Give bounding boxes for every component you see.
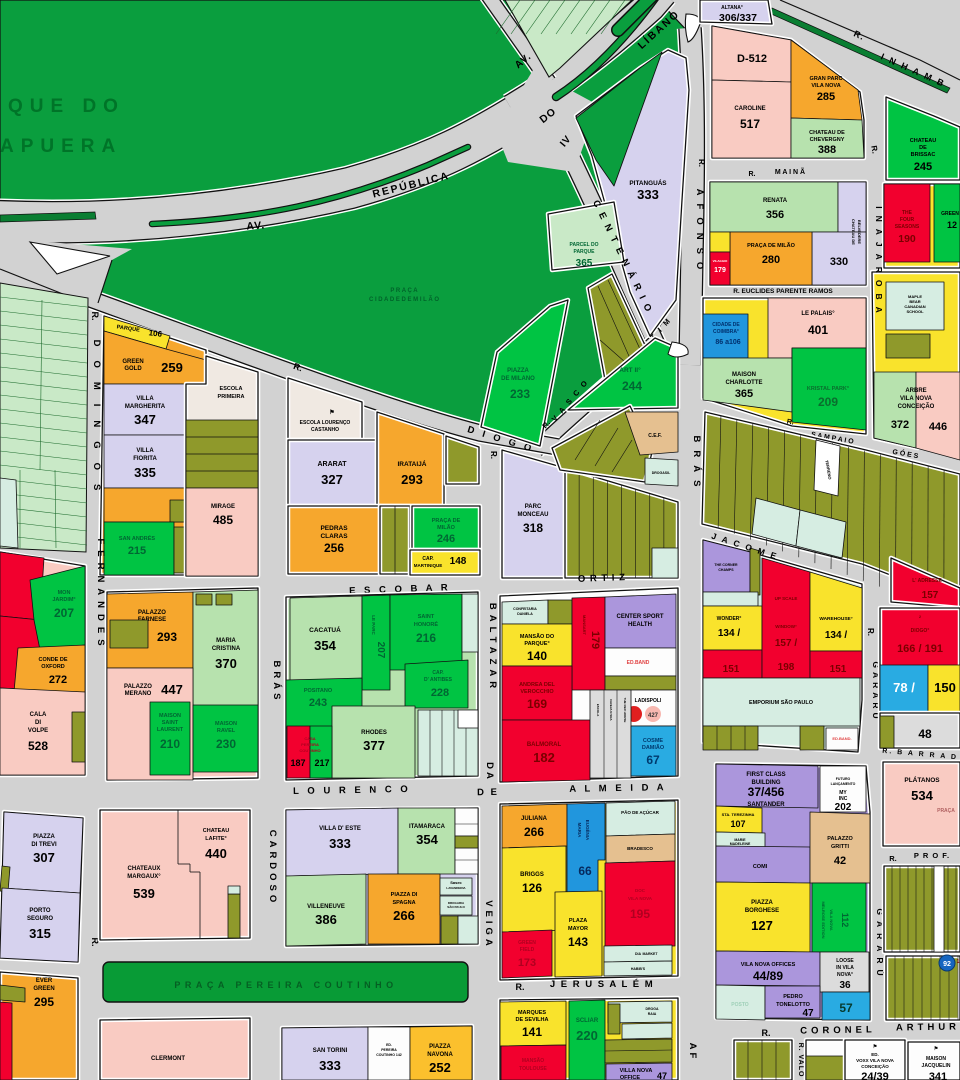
svg-text:CHATEAUX: CHATEAUX bbox=[128, 866, 161, 872]
svg-text:256: 256 bbox=[324, 541, 344, 555]
svg-text:PIAZZA: PIAZZA bbox=[429, 1044, 451, 1050]
svg-text:MARGAUX°: MARGAUX° bbox=[127, 874, 161, 880]
svg-text:R.: R. bbox=[697, 159, 706, 167]
svg-text:PLÁTANOS: PLÁTANOS bbox=[904, 775, 940, 784]
svg-text:RAIA: RAIA bbox=[648, 1012, 657, 1016]
svg-text:PRAÇA PEREIRA COUTINHO: PRAÇA PEREIRA COUTINHO bbox=[174, 980, 397, 990]
svg-text:LAVANDERIA: LAVANDERIA bbox=[446, 886, 466, 890]
svg-text:293: 293 bbox=[157, 630, 177, 644]
svg-text:LE PALAIS°: LE PALAIS° bbox=[801, 311, 835, 317]
svg-text:BALTAZAR: BALTAZAR bbox=[487, 603, 498, 693]
svg-text:PLAZA: PLAZA bbox=[569, 918, 587, 924]
svg-text:COUTINHO 142: COUTINHO 142 bbox=[376, 1053, 402, 1057]
svg-text:143: 143 bbox=[568, 935, 588, 949]
svg-text:315: 315 bbox=[29, 926, 51, 941]
svg-text:⚑: ⚑ bbox=[934, 1046, 938, 1052]
svg-text:GREEN: GREEN bbox=[33, 986, 54, 992]
svg-text:333: 333 bbox=[319, 1058, 341, 1073]
svg-text:MANSART: MANSART bbox=[582, 615, 587, 636]
svg-text:42: 42 bbox=[834, 855, 846, 867]
svg-text:CLARAS: CLARAS bbox=[320, 533, 348, 540]
svg-text:ANDREA DEL: ANDREA DEL bbox=[519, 682, 555, 688]
svg-text:ESCOLA: ESCOLA bbox=[596, 704, 600, 717]
svg-text:179: 179 bbox=[589, 631, 601, 649]
svg-text:190: 190 bbox=[898, 233, 916, 245]
svg-text:COMI: COMI bbox=[753, 864, 768, 870]
svg-text:DAMIÃO: DAMIÃO bbox=[642, 744, 665, 751]
svg-text:JACQUELIN: JACQUELIN bbox=[922, 1063, 951, 1069]
svg-text:VILLENEUVE: VILLENEUVE bbox=[307, 904, 345, 910]
svg-text:ARARAT: ARARAT bbox=[317, 461, 347, 468]
svg-text:333: 333 bbox=[329, 836, 351, 851]
svg-text:187: 187 bbox=[290, 758, 305, 768]
svg-text:COSME: COSME bbox=[643, 738, 664, 744]
svg-text:134 /: 134 / bbox=[825, 630, 847, 641]
svg-text:PARQUE: PARQUE bbox=[573, 249, 595, 255]
svg-text:285: 285 bbox=[817, 91, 835, 103]
svg-text:J E R U S A L É M: J E R U S A L É M bbox=[550, 979, 654, 990]
svg-text:LAURENT: LAURENT bbox=[157, 727, 184, 733]
svg-text:WONDER°: WONDER° bbox=[717, 616, 742, 622]
svg-text:202: 202 bbox=[835, 802, 852, 813]
svg-text:DE: DE bbox=[919, 145, 927, 151]
svg-text:UP SCALE: UP SCALE bbox=[775, 596, 798, 601]
svg-text:86 a106: 86 a106 bbox=[715, 339, 740, 346]
svg-text:341: 341 bbox=[929, 1071, 947, 1080]
svg-text:166 / 191: 166 / 191 bbox=[897, 643, 943, 655]
svg-text:280: 280 bbox=[762, 254, 780, 266]
svg-text:266: 266 bbox=[524, 825, 544, 839]
svg-text:RHODES: RHODES bbox=[361, 730, 387, 736]
svg-text:IRATAIJÁ: IRATAIJÁ bbox=[397, 459, 426, 468]
svg-text:37/456: 37/456 bbox=[748, 785, 785, 799]
svg-text:CACATUÁ: CACATUÁ bbox=[309, 625, 341, 634]
svg-text:GREEN: GREEN bbox=[122, 359, 143, 365]
svg-text:528: 528 bbox=[28, 739, 48, 753]
svg-text:THE: THE bbox=[902, 210, 913, 216]
svg-text:R.: R. bbox=[889, 854, 897, 863]
svg-text:DANIELA: DANIELA bbox=[517, 612, 533, 616]
svg-text:R. VALO: R. VALO bbox=[797, 1043, 804, 1078]
svg-text:EVER: EVER bbox=[36, 978, 53, 984]
svg-text:CHEVERGNY: CHEVERGNY bbox=[810, 137, 845, 143]
svg-text:BRADESCO: BRADESCO bbox=[627, 846, 653, 851]
svg-text:169: 169 bbox=[527, 697, 547, 711]
svg-text:RAVEL: RAVEL bbox=[217, 728, 236, 734]
svg-text:LE PARC: LE PARC bbox=[371, 615, 376, 635]
svg-text:DI TREVI: DI TREVI bbox=[31, 842, 57, 848]
svg-text:FUTURO: FUTURO bbox=[836, 777, 851, 781]
svg-text:1: 1 bbox=[957, 959, 960, 965]
svg-text:DROGASIL: DROGASIL bbox=[652, 471, 671, 475]
svg-text:140: 140 bbox=[527, 649, 547, 663]
svg-text:MERANO: MERANO bbox=[125, 691, 152, 697]
svg-text:PITANGUÁS: PITANGUÁS bbox=[629, 178, 667, 187]
svg-text:295: 295 bbox=[34, 995, 54, 1009]
svg-text:R. EUCLIDES PARENTE RAMOS: R. EUCLIDES PARENTE RAMOS bbox=[733, 288, 833, 295]
svg-text:VILAGGIO: VILAGGIO bbox=[713, 259, 728, 263]
svg-text:D E: D E bbox=[477, 787, 499, 798]
svg-text:VEIGA: VEIGA bbox=[483, 900, 494, 950]
svg-text:C.E.F.: C.E.F. bbox=[648, 433, 662, 439]
svg-text:44/89: 44/89 bbox=[753, 969, 783, 983]
svg-text:151: 151 bbox=[830, 664, 847, 675]
svg-text:127: 127 bbox=[751, 918, 773, 933]
svg-text:IN VILA: IN VILA bbox=[836, 965, 854, 971]
svg-text:MARIA: MARIA bbox=[216, 638, 236, 644]
svg-text:VILA NOVA: VILA NOVA bbox=[900, 396, 933, 402]
svg-text:PIAZZA: PIAZZA bbox=[33, 834, 55, 840]
svg-text:PEREIRA: PEREIRA bbox=[301, 742, 319, 747]
svg-text:78 /: 78 / bbox=[893, 680, 915, 695]
svg-text:⚑: ⚑ bbox=[329, 409, 334, 416]
svg-text:FIELD: FIELD bbox=[520, 947, 535, 953]
svg-text:92: 92 bbox=[943, 961, 951, 968]
svg-text:M A I N Ã: M A I N Ã bbox=[775, 167, 805, 176]
svg-text:354: 354 bbox=[314, 638, 336, 653]
svg-text:157: 157 bbox=[922, 590, 939, 601]
svg-text:HEALTH: HEALTH bbox=[628, 622, 652, 628]
svg-text:370: 370 bbox=[215, 656, 237, 671]
svg-text:POSTO: POSTO bbox=[731, 1002, 749, 1008]
svg-text:447: 447 bbox=[161, 682, 183, 697]
svg-text:FIORITA: FIORITA bbox=[133, 456, 157, 462]
svg-text:SPAGNA: SPAGNA bbox=[392, 900, 415, 906]
svg-text:ED.: ED. bbox=[386, 1043, 392, 1047]
svg-text:107: 107 bbox=[730, 819, 745, 829]
svg-text:MANSÃO: MANSÃO bbox=[522, 1057, 544, 1064]
svg-text:GRITTI: GRITTI bbox=[831, 844, 849, 850]
svg-text:L O U R E N C O: L O U R E N C O bbox=[293, 784, 411, 797]
svg-text:210: 210 bbox=[160, 737, 180, 751]
svg-text:24/39: 24/39 bbox=[861, 1071, 889, 1080]
svg-text:WAREHOUSE°: WAREHOUSE° bbox=[819, 616, 852, 622]
svg-text:12: 12 bbox=[947, 220, 957, 230]
svg-text:293: 293 bbox=[401, 472, 423, 487]
svg-text:MILÃO: MILÃO bbox=[437, 524, 455, 531]
svg-text:HABIB'S: HABIB'S bbox=[631, 967, 646, 971]
svg-text:PIAZZA: PIAZZA bbox=[507, 368, 529, 374]
svg-text:R.: R. bbox=[90, 312, 100, 321]
svg-text:CASTANHO: CASTANHO bbox=[311, 427, 339, 433]
svg-text:SCLIAR: SCLIAR bbox=[576, 1018, 599, 1024]
svg-text:198: 198 bbox=[778, 662, 795, 673]
svg-text:FERNANDES: FERNANDES bbox=[95, 538, 106, 651]
svg-text:517: 517 bbox=[740, 117, 760, 131]
svg-text:141: 141 bbox=[522, 1025, 542, 1039]
svg-text:KRISTAL PARK°: KRISTAL PARK° bbox=[807, 386, 849, 392]
svg-text:MARIA: MARIA bbox=[577, 823, 582, 838]
svg-text:173: 173 bbox=[518, 957, 536, 969]
svg-text:COIMBRA°: COIMBRA° bbox=[713, 329, 739, 335]
svg-text:216: 216 bbox=[416, 631, 436, 645]
svg-text:356: 356 bbox=[766, 209, 784, 221]
svg-text:⚑: ⚑ bbox=[873, 1044, 877, 1050]
svg-text:233: 233 bbox=[510, 387, 530, 401]
svg-text:BRÁS: BRÁS bbox=[271, 661, 282, 704]
svg-text:106: 106 bbox=[148, 328, 163, 339]
svg-text:HONORÉ: HONORÉ bbox=[414, 620, 438, 628]
svg-text:AFONSO: AFONSO bbox=[694, 189, 705, 278]
svg-text:VILA NOVA: VILA NOVA bbox=[628, 896, 653, 901]
svg-text:THE RED HOUSE: THE RED HOUSE bbox=[623, 698, 627, 723]
svg-text:EUGÊNIA: EUGÊNIA bbox=[585, 820, 592, 841]
svg-text:L' ADRESSE: L' ADRESSE bbox=[912, 578, 942, 584]
svg-text:MARQUES: MARQUES bbox=[518, 1010, 546, 1016]
svg-text:MANSÃO DO: MANSÃO DO bbox=[520, 633, 555, 640]
svg-text:SAN ANDRÉS: SAN ANDRÉS bbox=[119, 534, 155, 542]
svg-text:245: 245 bbox=[914, 161, 932, 173]
svg-text:PARCEL DO: PARCEL DO bbox=[570, 242, 599, 248]
svg-text:207: 207 bbox=[54, 606, 74, 620]
svg-text:ARTHUR: ARTHUR bbox=[896, 1021, 960, 1033]
svg-text:ALTANA°: ALTANA° bbox=[721, 5, 743, 11]
svg-text:DIA: DIA bbox=[635, 952, 642, 956]
svg-text:WINDOW°: WINDOW° bbox=[775, 624, 797, 629]
svg-text:BRÁS: BRÁS bbox=[691, 436, 702, 495]
svg-text:ITAMARACA: ITAMARACA bbox=[409, 824, 446, 830]
svg-text:R.: R. bbox=[762, 1028, 771, 1038]
svg-text:BALMORAL: BALMORAL bbox=[527, 742, 562, 748]
svg-text:446: 446 bbox=[929, 421, 947, 433]
svg-text:FOUR: FOUR bbox=[900, 217, 915, 223]
svg-text:209: 209 bbox=[818, 395, 838, 409]
svg-text:230: 230 bbox=[216, 737, 236, 751]
svg-text:SEASONS: SEASONS bbox=[895, 224, 920, 230]
svg-text:D-512: D-512 bbox=[737, 53, 767, 65]
svg-text:TOULOUSE: TOULOUSE bbox=[519, 1066, 547, 1072]
svg-text:R.: R. bbox=[866, 628, 875, 636]
svg-text:CHAMPS: CHAMPS bbox=[718, 568, 734, 572]
svg-text:A L M E I D A: A L M E I D A bbox=[569, 782, 666, 795]
svg-text:215: 215 bbox=[128, 545, 146, 557]
svg-text:PEREIRA: PEREIRA bbox=[381, 1048, 397, 1052]
svg-text:GREEN: GREEN bbox=[518, 940, 536, 946]
svg-text:GREEN: GREEN bbox=[941, 211, 959, 217]
svg-text:SÃO PAULO: SÃO PAULO bbox=[447, 904, 465, 909]
svg-text:ARBRE: ARBRE bbox=[905, 388, 926, 394]
svg-text:DI: DI bbox=[35, 720, 41, 726]
svg-text:207: 207 bbox=[375, 642, 386, 659]
svg-text:388: 388 bbox=[818, 144, 836, 156]
svg-text:APUERA: APUERA bbox=[0, 136, 122, 157]
svg-text:THE CORNER: THE CORNER bbox=[714, 563, 738, 567]
svg-text:243: 243 bbox=[309, 697, 327, 709]
svg-text:CAROLINE: CAROLINE bbox=[734, 106, 765, 112]
svg-text:POSITANO: POSITANO bbox=[304, 688, 333, 694]
svg-text:MAISON: MAISON bbox=[215, 721, 237, 727]
svg-text:DE SEVILHA: DE SEVILHA bbox=[515, 1017, 548, 1023]
svg-text:179: 179 bbox=[714, 267, 726, 274]
svg-text:OFFICE: OFFICE bbox=[620, 1075, 640, 1080]
svg-text:534: 534 bbox=[911, 788, 933, 803]
svg-text:SEGURO: SEGURO bbox=[27, 916, 53, 922]
svg-text:BRISSAC: BRISSAC bbox=[911, 152, 936, 158]
svg-text:347: 347 bbox=[134, 412, 156, 427]
svg-text:157 /: 157 / bbox=[775, 638, 797, 649]
svg-text:COUTINHO: COUTINHO bbox=[299, 748, 320, 753]
svg-text:272: 272 bbox=[49, 674, 67, 686]
svg-text:R.: R. bbox=[786, 418, 794, 426]
svg-text:CONCEIÇÃO: CONCEIÇÃO bbox=[861, 1063, 889, 1069]
svg-text:MIRAGE: MIRAGE bbox=[211, 504, 235, 510]
svg-text:R.: R. bbox=[516, 982, 525, 992]
svg-text:CHATEAU DE: CHATEAU DE bbox=[851, 219, 856, 245]
svg-text:VILLA D' ESTE: VILLA D' ESTE bbox=[319, 826, 361, 832]
svg-text:C I D A D E D E M I L Ã O: C I D A D E D E M I L Ã O bbox=[369, 296, 439, 303]
svg-text:IGREJA N SRA: IGREJA N SRA bbox=[609, 699, 613, 721]
svg-text:R.: R. bbox=[869, 145, 879, 154]
svg-text:CONFEITARIA: CONFEITARIA bbox=[513, 607, 537, 611]
svg-text:427: 427 bbox=[648, 713, 659, 719]
svg-text:PÃO DE AÇÚCAR: PÃO DE AÇÚCAR bbox=[621, 809, 660, 815]
svg-text:Sasec: Sasec bbox=[450, 880, 462, 885]
svg-text:372: 372 bbox=[891, 419, 909, 431]
svg-text:GRAN PARC: GRAN PARC bbox=[810, 76, 843, 82]
svg-text:CHATEAU DE: CHATEAU DE bbox=[809, 130, 845, 136]
svg-text:VILLA: VILLA bbox=[136, 448, 154, 454]
svg-text:PALAZZO: PALAZZO bbox=[138, 610, 166, 616]
svg-text:217: 217 bbox=[314, 758, 329, 768]
svg-text:FIRST CLASS: FIRST CLASS bbox=[746, 772, 785, 778]
svg-text:AF: AF bbox=[687, 1043, 698, 1062]
svg-text:PORTO: PORTO bbox=[29, 908, 51, 914]
svg-text:CHARLOTTE: CHARLOTTE bbox=[726, 380, 763, 386]
svg-text:RENATA: RENATA bbox=[763, 198, 788, 204]
svg-text:MAISON: MAISON bbox=[926, 1056, 946, 1062]
svg-text:266: 266 bbox=[393, 908, 415, 923]
svg-text:INAJAROBA: INAJAROBA bbox=[874, 206, 884, 320]
svg-text:401: 401 bbox=[808, 323, 828, 337]
svg-text:VILA NOVA: VILA NOVA bbox=[829, 909, 834, 930]
svg-text:252: 252 bbox=[429, 1060, 451, 1075]
svg-text:244: 244 bbox=[622, 379, 642, 393]
svg-text:R.: R. bbox=[489, 451, 498, 459]
svg-text:OXFORD: OXFORD bbox=[41, 664, 65, 670]
svg-text:318: 318 bbox=[523, 521, 543, 535]
svg-text:VOLPE: VOLPE bbox=[28, 728, 48, 734]
svg-text:LAFITE°: LAFITE° bbox=[205, 836, 226, 842]
svg-text:CAP.: CAP. bbox=[432, 670, 444, 676]
svg-text:CORONEL: CORONEL bbox=[800, 1024, 876, 1036]
svg-text:MAYOR: MAYOR bbox=[568, 926, 588, 932]
svg-text:CHATEAU: CHATEAU bbox=[910, 138, 937, 144]
svg-text:CHATEAU: CHATEAU bbox=[203, 828, 230, 834]
svg-text:DROGA: DROGA bbox=[645, 1007, 659, 1011]
svg-text:57: 57 bbox=[839, 1001, 853, 1015]
svg-text:PARC: PARC bbox=[525, 504, 542, 510]
svg-text:CONDE DE: CONDE DE bbox=[38, 657, 67, 663]
svg-text:330: 330 bbox=[830, 256, 848, 268]
svg-text:MAISON: MAISON bbox=[159, 713, 181, 719]
svg-text:228: 228 bbox=[431, 687, 449, 699]
svg-text:354: 354 bbox=[416, 832, 438, 847]
svg-text:259: 259 bbox=[161, 360, 183, 375]
svg-text:150: 150 bbox=[934, 680, 956, 695]
svg-text:112: 112 bbox=[840, 913, 850, 928]
svg-text:SAN TORINI: SAN TORINI bbox=[313, 1048, 348, 1054]
svg-text:SCHOOL: SCHOOL bbox=[906, 309, 924, 314]
svg-text:D' ANTIBES: D' ANTIBES bbox=[424, 677, 453, 683]
svg-text:CIDADE DE: CIDADE DE bbox=[712, 322, 740, 328]
svg-text:VILLA: VILLA bbox=[136, 396, 154, 402]
svg-text:333: 333 bbox=[637, 187, 659, 202]
svg-text:P R O F.: P R O F. bbox=[914, 851, 950, 860]
svg-text:DE MILANO: DE MILANO bbox=[501, 376, 535, 382]
svg-text:GOLD: GOLD bbox=[124, 366, 142, 372]
svg-text:PIAZZA DI: PIAZZA DI bbox=[391, 892, 418, 898]
svg-text:VILA NOVA OFFICES: VILA NOVA OFFICES bbox=[741, 962, 796, 968]
svg-text:MELROSE EDITION: MELROSE EDITION bbox=[821, 901, 826, 938]
svg-text:CARDOSO: CARDOSO bbox=[267, 830, 278, 907]
svg-text:134 /: 134 / bbox=[718, 628, 740, 639]
svg-text:PEDRO: PEDRO bbox=[783, 994, 803, 1000]
svg-text:P R A Ç A: P R A Ç A bbox=[390, 288, 418, 294]
svg-text:PALAZZO: PALAZZO bbox=[827, 836, 853, 842]
svg-text:SAINT: SAINT bbox=[418, 614, 435, 620]
svg-text:36: 36 bbox=[839, 980, 851, 991]
svg-text:66: 66 bbox=[578, 864, 592, 878]
svg-text:ED.BAND: ED.BAND bbox=[627, 660, 650, 666]
svg-text:PEDRAS: PEDRAS bbox=[320, 525, 348, 532]
svg-text:485: 485 bbox=[213, 513, 233, 527]
svg-text:CRISTINA: CRISTINA bbox=[212, 646, 241, 652]
svg-text:EMPORIUM SÃO PAULO: EMPORIUM SÃO PAULO bbox=[749, 699, 814, 706]
svg-text:365: 365 bbox=[735, 388, 753, 400]
svg-text:VOXX VILA NOVA: VOXX VILA NOVA bbox=[856, 1058, 895, 1063]
svg-text:DOMINGOS: DOMINGOS bbox=[91, 340, 102, 505]
svg-text:R.: R. bbox=[749, 171, 756, 178]
svg-text:CONCEIÇÃO: CONCEIÇÃO bbox=[898, 403, 935, 410]
svg-text:MADELEINE: MADELEINE bbox=[730, 842, 751, 846]
svg-text:182: 182 bbox=[533, 750, 555, 765]
svg-text:JARDIM°: JARDIM° bbox=[52, 597, 75, 603]
svg-text:CENTER SPORT: CENTER SPORT bbox=[616, 614, 663, 620]
svg-text:MARTINIQUE: MARTINIQUE bbox=[414, 563, 443, 568]
svg-text:JULIANA: JULIANA bbox=[521, 816, 548, 822]
svg-text:246: 246 bbox=[437, 533, 455, 545]
svg-text:PRAÇA DE MILÃO: PRAÇA DE MILÃO bbox=[747, 242, 795, 249]
svg-text:BRIGGS: BRIGGS bbox=[520, 872, 544, 878]
svg-text:327: 327 bbox=[321, 472, 343, 487]
svg-text:MON: MON bbox=[58, 590, 71, 596]
svg-text:CAP.: CAP. bbox=[422, 556, 434, 562]
svg-text:STA. TEREZINHA: STA. TEREZINHA bbox=[722, 812, 755, 817]
svg-text:539: 539 bbox=[133, 886, 155, 901]
svg-text:126: 126 bbox=[522, 881, 542, 895]
svg-text:440: 440 bbox=[205, 846, 227, 861]
svg-text:PIAZZA: PIAZZA bbox=[751, 900, 773, 906]
svg-text:151: 151 bbox=[723, 664, 740, 675]
svg-text:O R T I Z: O R T I Z bbox=[578, 572, 626, 585]
svg-text:SAINT: SAINT bbox=[162, 720, 179, 726]
svg-text:DA: DA bbox=[484, 762, 495, 782]
svg-text:ESCOLA: ESCOLA bbox=[220, 386, 243, 392]
svg-text:PRIMEIRA: PRIMEIRA bbox=[218, 394, 245, 400]
svg-text:MONCEAU: MONCEAU bbox=[518, 512, 549, 518]
svg-text:SANTANDER: SANTANDER bbox=[747, 802, 785, 808]
svg-text:PALAZZO: PALAZZO bbox=[124, 684, 152, 690]
svg-text:LANÇAMENTO: LANÇAMENTO bbox=[831, 782, 856, 786]
svg-text:47: 47 bbox=[657, 1071, 667, 1080]
svg-text:MAISON: MAISON bbox=[732, 372, 756, 378]
svg-text:ART II°: ART II° bbox=[619, 366, 641, 374]
svg-text:335: 335 bbox=[134, 465, 156, 480]
svg-text:LADISPOLI: LADISPOLI bbox=[635, 698, 662, 704]
svg-text:ESCOLA LOURENÇO: ESCOLA LOURENÇO bbox=[300, 420, 351, 426]
svg-text:VILA NOVA: VILA NOVA bbox=[811, 83, 840, 89]
svg-text:BELVEDERE: BELVEDERE bbox=[857, 220, 862, 244]
